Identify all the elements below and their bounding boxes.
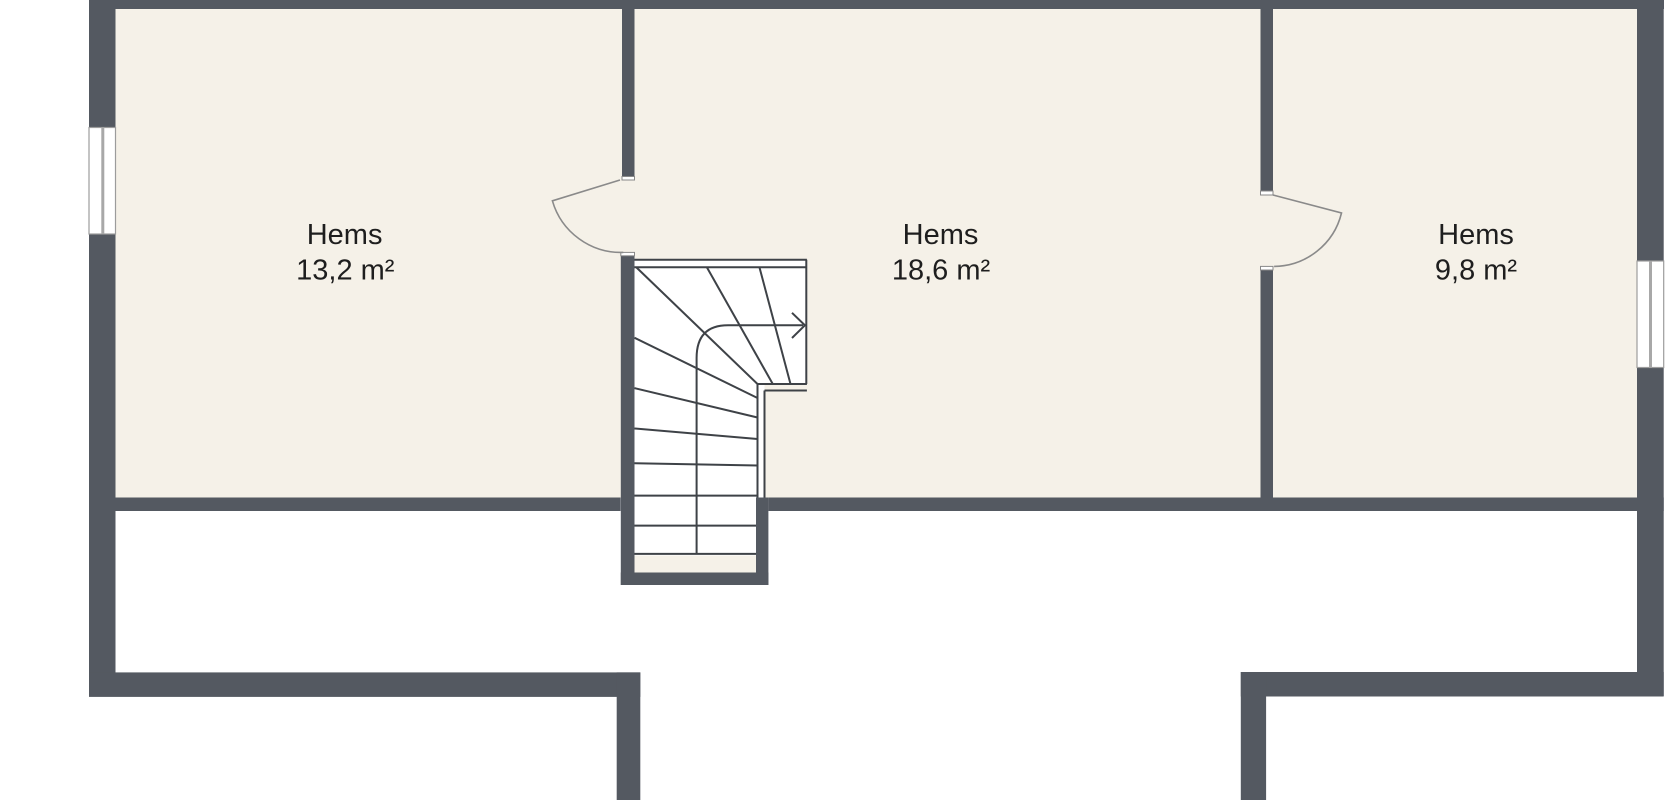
svg-text:9,8 m²: 9,8 m²: [1435, 254, 1518, 286]
svg-text:13,2 m²: 13,2 m²: [296, 254, 395, 286]
svg-text:Hems: Hems: [1438, 219, 1514, 251]
svg-text:Hems: Hems: [307, 219, 383, 251]
svg-text:Hems: Hems: [903, 219, 979, 251]
svg-text:18,6 m²: 18,6 m²: [892, 254, 991, 286]
